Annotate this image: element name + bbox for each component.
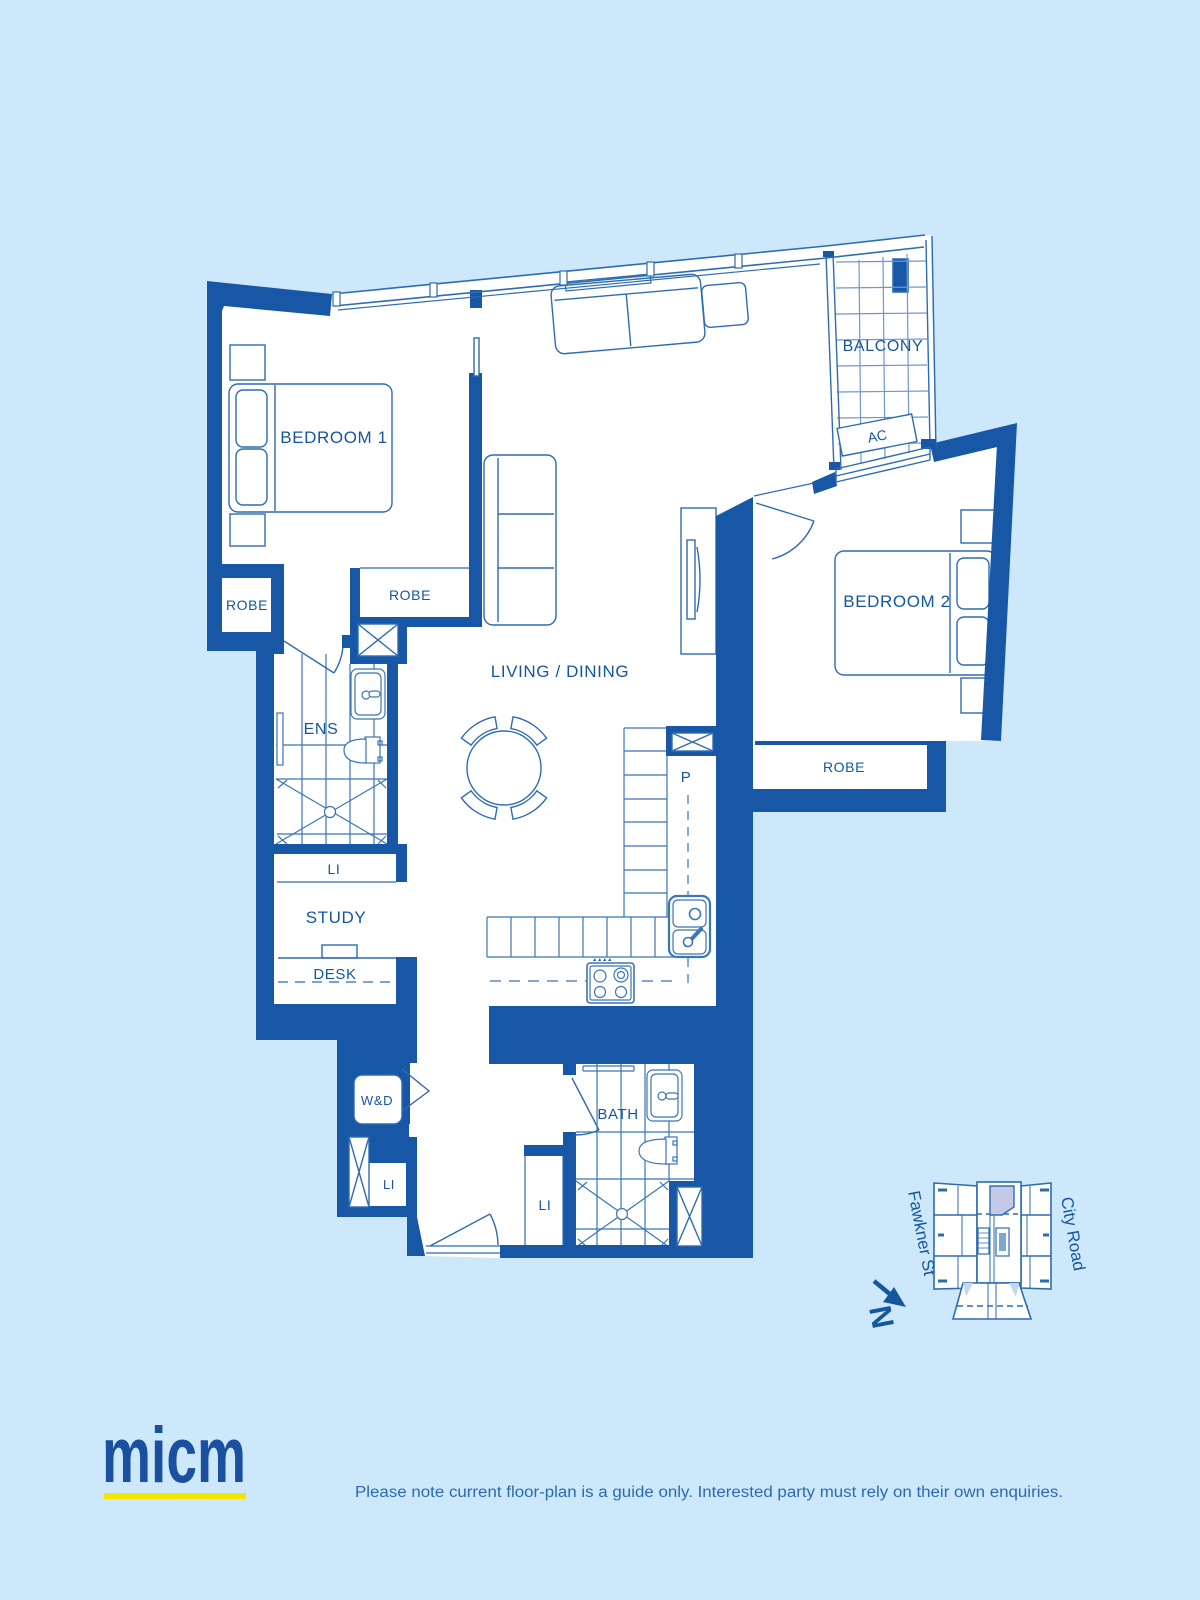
svg-text:ROBE: ROBE bbox=[823, 759, 865, 775]
svg-text:ENS: ENS bbox=[304, 721, 339, 738]
svg-text:BATH: BATH bbox=[597, 1106, 638, 1123]
svg-text:BEDROOM 2: BEDROOM 2 bbox=[843, 592, 950, 611]
svg-text:LI: LI bbox=[383, 1177, 395, 1192]
svg-text:P: P bbox=[681, 769, 692, 786]
svg-text:Please note current floor-plan: Please note current floor-plan is a guid… bbox=[355, 1484, 1063, 1501]
svg-text:LI: LI bbox=[328, 861, 341, 877]
svg-text:ROBE: ROBE bbox=[389, 587, 431, 603]
svg-text:LI: LI bbox=[539, 1197, 552, 1213]
svg-text:STUDY: STUDY bbox=[306, 908, 367, 927]
svg-text:micm: micm bbox=[102, 1410, 246, 1499]
svg-text:BALCONY: BALCONY bbox=[843, 338, 924, 355]
svg-text:LIVING / DINING: LIVING / DINING bbox=[491, 662, 629, 681]
svg-text:ROBE: ROBE bbox=[226, 597, 268, 613]
svg-text:BEDROOM 1: BEDROOM 1 bbox=[280, 428, 387, 447]
svg-text:W&D: W&D bbox=[361, 1093, 393, 1108]
svg-text:DESK: DESK bbox=[313, 966, 356, 983]
